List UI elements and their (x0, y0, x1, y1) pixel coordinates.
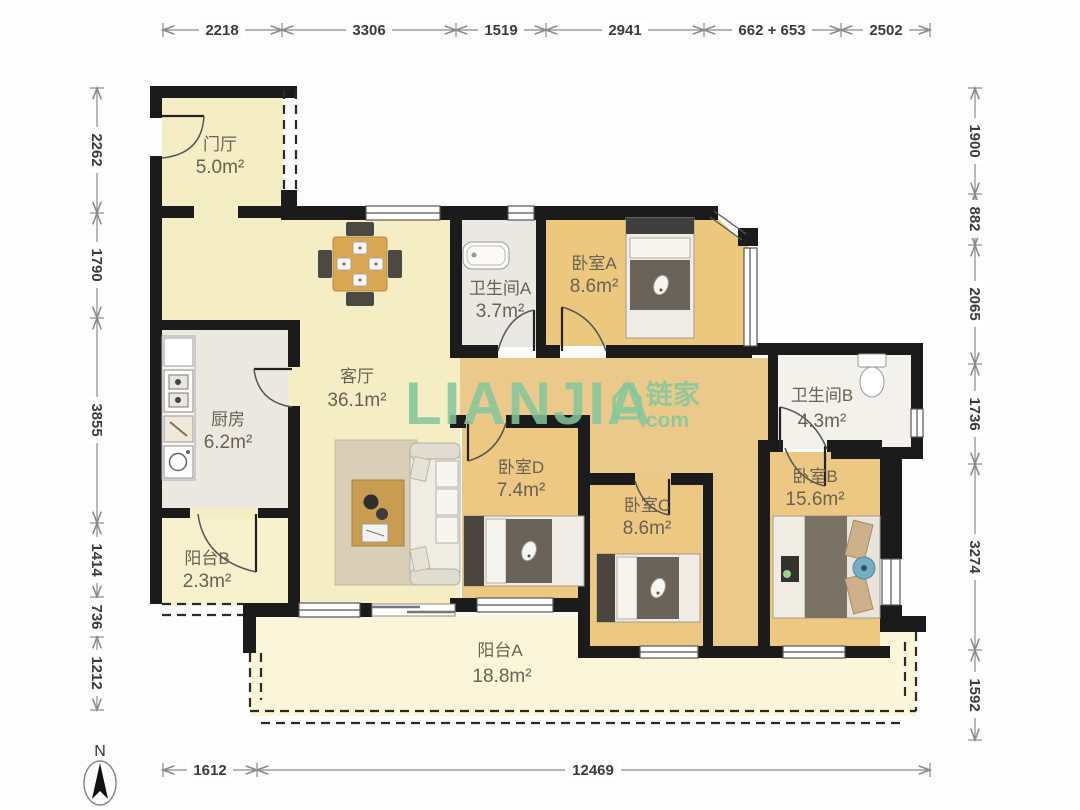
tv (781, 556, 799, 582)
dim-right-1: 882 (966, 206, 983, 231)
room-label-living: 客厅 (340, 367, 374, 386)
window (783, 646, 845, 658)
bed-b (773, 516, 880, 618)
room-label-balcony-a: 阳台A (477, 641, 523, 660)
watermark: LIANJIA 链家 .com (405, 370, 700, 437)
window (508, 206, 534, 220)
dim-top-3: 2941 (608, 22, 641, 39)
dim-left-2: 3855 (88, 403, 105, 436)
dim-left-3: 1414 (88, 543, 105, 577)
dimension-left: 2262 1790 3855 1414 736 1212 (88, 88, 106, 710)
dim-bottom-0: 1612 (193, 762, 226, 779)
dimension-top: 2218 3306 1519 2941 662 + 653 2502 (163, 21, 930, 39)
room-label-bed-b: 卧室B (792, 467, 837, 486)
room-area-kitchen: 6.2m² (204, 432, 253, 453)
bathtub (463, 242, 509, 269)
room-label-bath-b: 卫生间B (791, 386, 853, 405)
room-area-bath-a: 3.7m² (476, 301, 525, 322)
window (299, 603, 360, 617)
room-label-bed-a: 卧室A (571, 254, 617, 273)
dim-top-2: 1519 (484, 22, 517, 39)
dim-right-4: 3274 (966, 540, 983, 574)
room-label-kitchen: 厨房 (211, 410, 245, 429)
floorplan-canvas: LIANJIA 链家 .com 门厅 5.0m² 客厅 36.1m² 厨房 6.… (0, 0, 1080, 810)
dim-top-4: 662 + 653 (738, 22, 805, 39)
dimension-bottom: 1612 12469 (163, 761, 930, 779)
window (477, 598, 553, 612)
sliding-door-balcony-a (372, 604, 455, 616)
room-label-bath-a: 卫生间A (469, 279, 532, 298)
room-area-bed-c: 8.6m² (623, 518, 672, 539)
dimension-right: 1900 882 2065 1736 3274 1592 (966, 88, 984, 740)
room-label-entry: 门厅 (203, 135, 237, 154)
window (366, 206, 440, 220)
window-bay-bed-a (744, 248, 757, 346)
watermark-domain: .com (640, 409, 689, 432)
room-area-bed-d: 7.4m² (497, 480, 546, 501)
room-area-bed-a: 8.6m² (570, 276, 619, 297)
room-area-entry: 5.0m² (196, 157, 245, 178)
room-area-bath-b: 4.3m² (798, 411, 847, 432)
kitchen-counter (162, 336, 195, 480)
window (882, 559, 900, 605)
room-area-living: 36.1m² (327, 390, 386, 411)
fridge (164, 338, 193, 366)
dim-left-4: 736 (88, 604, 105, 629)
window (911, 409, 923, 437)
dim-left-0: 2262 (88, 133, 105, 166)
room-label-balcony-b: 阳台B (184, 549, 229, 568)
window (640, 646, 698, 658)
bed-d (464, 516, 584, 586)
chair (388, 250, 402, 278)
floorplan-page: LIANJIA 链家 .com 门厅 5.0m² 客厅 36.1m² 厨房 6.… (0, 0, 1080, 810)
toilet (858, 354, 886, 397)
sofa (410, 443, 460, 585)
dim-right-3: 1736 (966, 397, 983, 430)
dim-top-1: 3306 (352, 22, 385, 39)
room-area-balcony-b: 2.3m² (183, 571, 232, 592)
compass: N (84, 743, 116, 805)
room-label-bed-c: 卧室C (624, 496, 670, 515)
dim-right-5: 1592 (966, 678, 983, 711)
dim-top-5: 2502 (869, 22, 902, 39)
chair (318, 250, 332, 278)
dim-left-1: 1790 (88, 248, 105, 281)
dim-left-5: 1212 (88, 656, 105, 689)
dim-right-0: 1900 (966, 124, 983, 157)
dim-top-0: 2218 (205, 22, 238, 39)
chair (346, 292, 374, 306)
dim-bottom-1: 12469 (572, 762, 614, 779)
room-label-bed-d: 卧室D (498, 458, 544, 477)
bed-c (597, 554, 700, 622)
chair (346, 222, 374, 236)
coffee-table (352, 480, 404, 546)
room-area-balcony-a: 18.8m² (472, 666, 531, 687)
compass-north-label: N (94, 743, 106, 760)
watermark-cn: 链家 (646, 379, 700, 410)
bed-a (626, 218, 694, 338)
room-area-bed-b: 15.6m² (785, 489, 844, 510)
dim-right-2: 2065 (966, 287, 983, 320)
